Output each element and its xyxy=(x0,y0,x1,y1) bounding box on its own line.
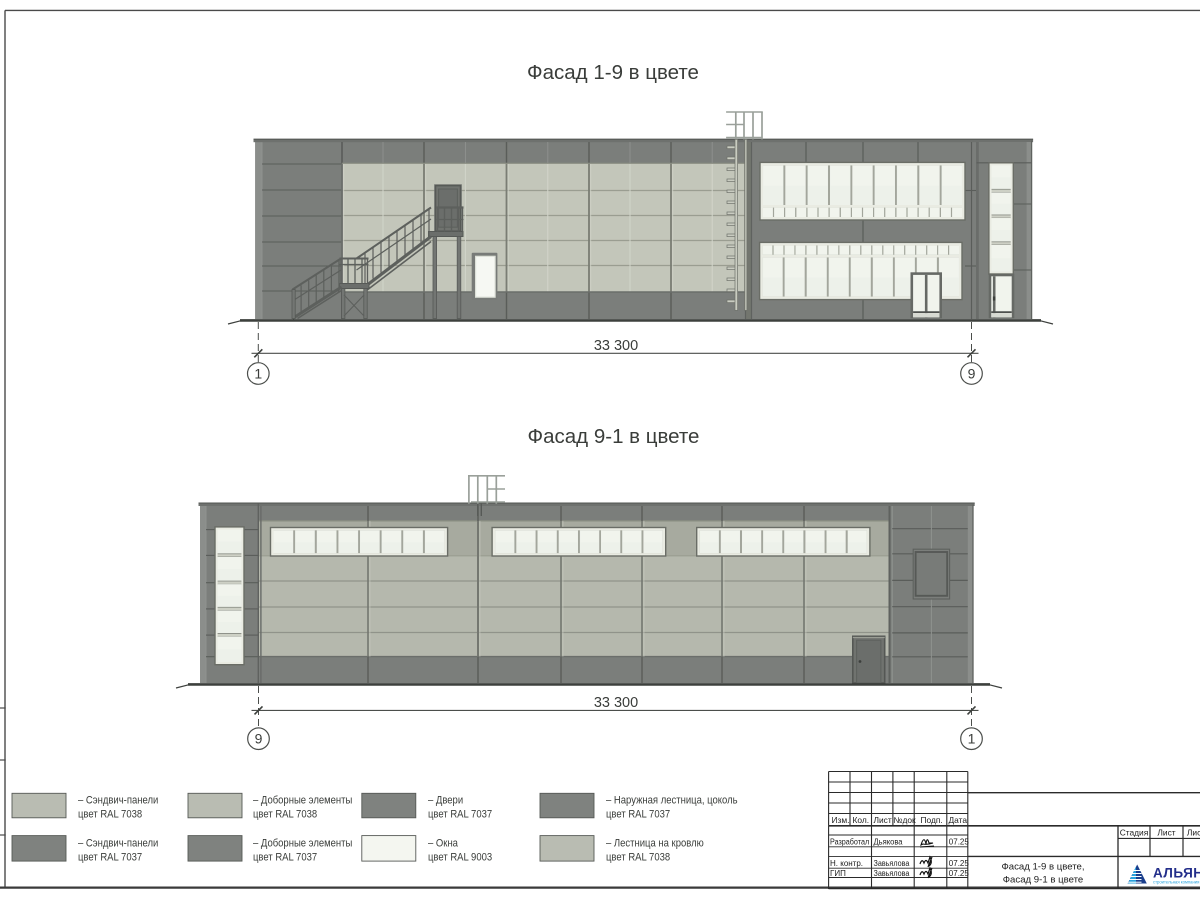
svg-text:33 300: 33 300 xyxy=(594,695,638,711)
svg-text:ГИП: ГИП xyxy=(830,869,846,878)
svg-text:Лист: Лист xyxy=(1157,827,1175,837)
svg-text:07.25: 07.25 xyxy=(949,869,970,878)
svg-text:цвет RAL 7037: цвет RAL 7037 xyxy=(253,852,317,864)
svg-text:– Окна: – Окна xyxy=(428,838,458,850)
svg-text:07.25: 07.25 xyxy=(949,838,970,847)
svg-text:9: 9 xyxy=(968,365,976,381)
svg-text:Фасад 9-1 в цвете: Фасад 9-1 в цвете xyxy=(528,425,700,448)
svg-text:– Лестница на кровлю: – Лестница на кровлю xyxy=(606,838,704,850)
svg-text:Подп.: Подп. xyxy=(921,815,943,825)
svg-text:07.25: 07.25 xyxy=(949,859,970,868)
svg-text:Разработал: Разработал xyxy=(830,837,869,846)
svg-text:цвет RAL 7037: цвет RAL 7037 xyxy=(606,809,670,821)
svg-text:цвет RAL 7038: цвет RAL 7038 xyxy=(606,852,670,864)
svg-text:Дата: Дата xyxy=(949,815,968,825)
svg-text:– Двери: – Двери xyxy=(428,795,463,807)
svg-text:9: 9 xyxy=(255,731,263,747)
svg-text:Завьялова: Завьялова xyxy=(874,869,911,878)
svg-text:цвет RAL 7037: цвет RAL 7037 xyxy=(78,852,142,864)
svg-text:Н. контр.: Н. контр. xyxy=(830,859,863,868)
svg-text:цвет RAL 7037: цвет RAL 7037 xyxy=(428,809,492,821)
svg-text:33 300: 33 300 xyxy=(594,338,638,354)
svg-text:строительная компания: строительная компания xyxy=(1153,880,1199,885)
svg-text:Стадия: Стадия xyxy=(1120,827,1149,837)
svg-text:– Сэндвич-панели: – Сэндвич-панели xyxy=(78,838,158,850)
svg-text:Завьялова: Завьялова xyxy=(874,859,911,868)
svg-text:– Доборные элементы: – Доборные элементы xyxy=(253,794,352,807)
svg-text:– Доборные элементы: – Доборные элементы xyxy=(253,837,352,850)
svg-text:Лист: Лист xyxy=(1187,827,1200,837)
svg-text:Фасад 1-9 в цвете: Фасад 1-9 в цвете xyxy=(527,61,699,84)
svg-text:– Наружная лестница, цоколь: – Наружная лестница, цоколь xyxy=(606,795,738,807)
svg-text:1: 1 xyxy=(968,731,976,747)
svg-text:АЛЬЯНС: АЛЬЯНС xyxy=(1153,866,1200,881)
svg-text:Дьякова: Дьякова xyxy=(874,837,904,846)
svg-text:Изм.: Изм. xyxy=(832,815,850,825)
svg-text:Кол.: Кол. xyxy=(853,815,870,825)
svg-text:Фасад 1-9 в цвете,: Фасад 1-9 в цвете, xyxy=(1001,862,1084,873)
svg-text:– Сэндвич-панели: – Сэндвич-панели xyxy=(78,795,158,807)
svg-text:№док: №док xyxy=(894,815,917,825)
svg-text:цвет RAL 7038: цвет RAL 7038 xyxy=(78,809,142,821)
svg-text:Лист: Лист xyxy=(874,815,892,825)
svg-text:цвет RAL 9003: цвет RAL 9003 xyxy=(428,852,492,864)
svg-text:1: 1 xyxy=(254,365,262,381)
svg-text:цвет RAL 7038: цвет RAL 7038 xyxy=(253,809,317,821)
svg-text:Фасад 9-1 в цвете: Фасад 9-1 в цвете xyxy=(1003,875,1083,886)
